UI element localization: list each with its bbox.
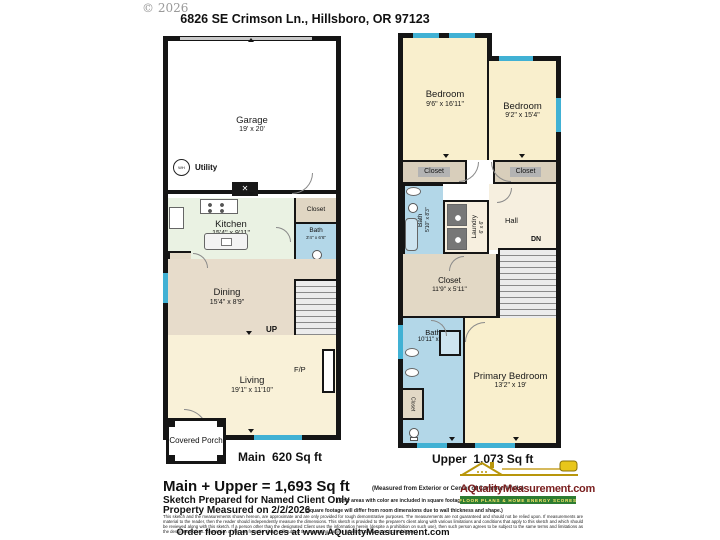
window xyxy=(163,273,168,303)
room-name: Primary Bedroom xyxy=(474,371,548,382)
up-label: UP xyxy=(266,325,277,334)
stairs-up xyxy=(294,279,336,335)
room-name: Closet xyxy=(410,397,416,411)
room-closet-main: Closet xyxy=(294,198,336,224)
furnace-icon: ✕ xyxy=(232,182,258,196)
utility-label: Utility xyxy=(195,163,217,172)
dimension-arrow xyxy=(248,38,254,42)
fireplace-label: F/P xyxy=(294,365,306,374)
kitchen-island-icon xyxy=(204,233,248,250)
sink-icon xyxy=(405,348,419,357)
porch-post xyxy=(166,418,175,427)
sink-icon xyxy=(221,238,232,246)
water-heater-icon: WH xyxy=(173,159,190,176)
porch-post xyxy=(217,418,226,427)
room-dims: 13'2" x 19' xyxy=(494,382,526,390)
dimension-arrow xyxy=(248,429,254,433)
window xyxy=(417,443,447,448)
floor-plan-page: © 2026 6826 SE Crimson Ln., Hillsboro, O… xyxy=(0,0,720,540)
room-bedroom-right: Bedroom 9'2" x 15'4" xyxy=(489,61,556,160)
bathtub-icon xyxy=(405,218,418,251)
refrigerator-icon xyxy=(169,207,184,229)
dimension-arrow xyxy=(519,154,525,158)
window xyxy=(254,435,302,440)
window xyxy=(499,56,533,61)
room-closet-left: Closet xyxy=(403,160,467,184)
sink-icon xyxy=(405,368,419,377)
dimension-arrow xyxy=(513,437,519,441)
room-name: Garage xyxy=(236,115,268,126)
hall-label: Hall xyxy=(505,216,518,225)
room-name: Closet xyxy=(510,167,542,177)
room-name: Closet xyxy=(418,167,450,177)
company-logo: AQualityMeasurement.com FLOOR PLANS & HO… xyxy=(460,458,580,505)
window xyxy=(556,98,561,132)
main-floor-label: Main 620 Sq ft xyxy=(238,450,322,464)
dimension-arrow xyxy=(449,437,455,441)
room-name: Bath xyxy=(309,227,322,235)
door-arc xyxy=(459,162,479,182)
order-line: Order floor plan services at www.AQualit… xyxy=(163,527,463,538)
logo-brand-text: AQualityMeasurement.com xyxy=(460,483,580,495)
sink-icon xyxy=(406,187,421,196)
total-sqft: Main + Upper = 1,693 Sq ft xyxy=(163,478,350,495)
room-name: Closet xyxy=(438,276,461,286)
room-dims: 6' x 6' xyxy=(479,221,485,234)
room-name: Bath xyxy=(417,213,425,226)
laundry-label-group: Laundry 6' x 6' xyxy=(471,215,485,239)
dimension-arrow xyxy=(248,192,254,196)
main-floor-plan: Garage 19' x 20' WH Utility ✕ Kitchen 15… xyxy=(163,36,341,440)
covered-porch: Covered Porch xyxy=(166,418,226,464)
garage-door xyxy=(180,37,312,40)
room-name: Living xyxy=(240,375,265,386)
porch-post xyxy=(217,455,226,464)
room-garage: Garage 19' x 20' xyxy=(168,41,336,194)
toilet-icon xyxy=(408,203,418,213)
washer-icon xyxy=(447,204,467,226)
dimension-arrow xyxy=(443,154,449,158)
room-dims: 5'10" x 8'3" xyxy=(425,208,431,233)
room-name: Bedroom xyxy=(426,89,465,100)
window xyxy=(475,443,515,448)
dn-label: DN xyxy=(531,236,541,243)
logo-house-tape-icon xyxy=(460,458,580,478)
room-name: Dining xyxy=(214,287,241,298)
dryer-icon xyxy=(447,228,467,250)
room-closet-small: Closet xyxy=(403,388,424,420)
porch-label: Covered Porch xyxy=(169,421,223,461)
room-dims: 15'4" x 8'9" xyxy=(210,299,245,307)
fireplace-icon xyxy=(322,349,335,393)
room-dims: 9'2" x 15'4" xyxy=(505,112,540,120)
property-address: 6826 SE Crimson Ln., Hillsboro, OR 97123 xyxy=(150,12,460,26)
room-dims: 19' x 20' xyxy=(239,126,265,134)
room-dims: 19'1" x 11'10" xyxy=(231,387,273,395)
room-name: Kitchen xyxy=(215,219,247,230)
room-dims: 3'4" x 6'6" xyxy=(306,235,326,241)
room-name: Bedroom xyxy=(503,101,542,112)
logo-tagline: FLOOR PLANS & HOME ENERGY SCORES xyxy=(460,496,576,504)
porch-post xyxy=(166,455,175,464)
toilet-tank-icon xyxy=(410,437,418,441)
room-bedroom-left: Bedroom 9'6" x 16'11" xyxy=(403,38,489,160)
window xyxy=(398,325,403,359)
room-dims: 9'6" x 16'11" xyxy=(426,101,464,109)
upper-floor-plan: Bedroom 9'6" x 16'11" Bedroom 9'2" x 15'… xyxy=(398,33,561,448)
room-dims: 11'9" x 5'11" xyxy=(432,286,467,294)
wh-label: WH xyxy=(178,165,185,170)
room-name: Closet xyxy=(307,206,325,214)
dimension-arrow xyxy=(246,331,252,335)
window xyxy=(413,33,439,38)
stove-icon xyxy=(200,199,238,214)
window xyxy=(449,33,475,38)
